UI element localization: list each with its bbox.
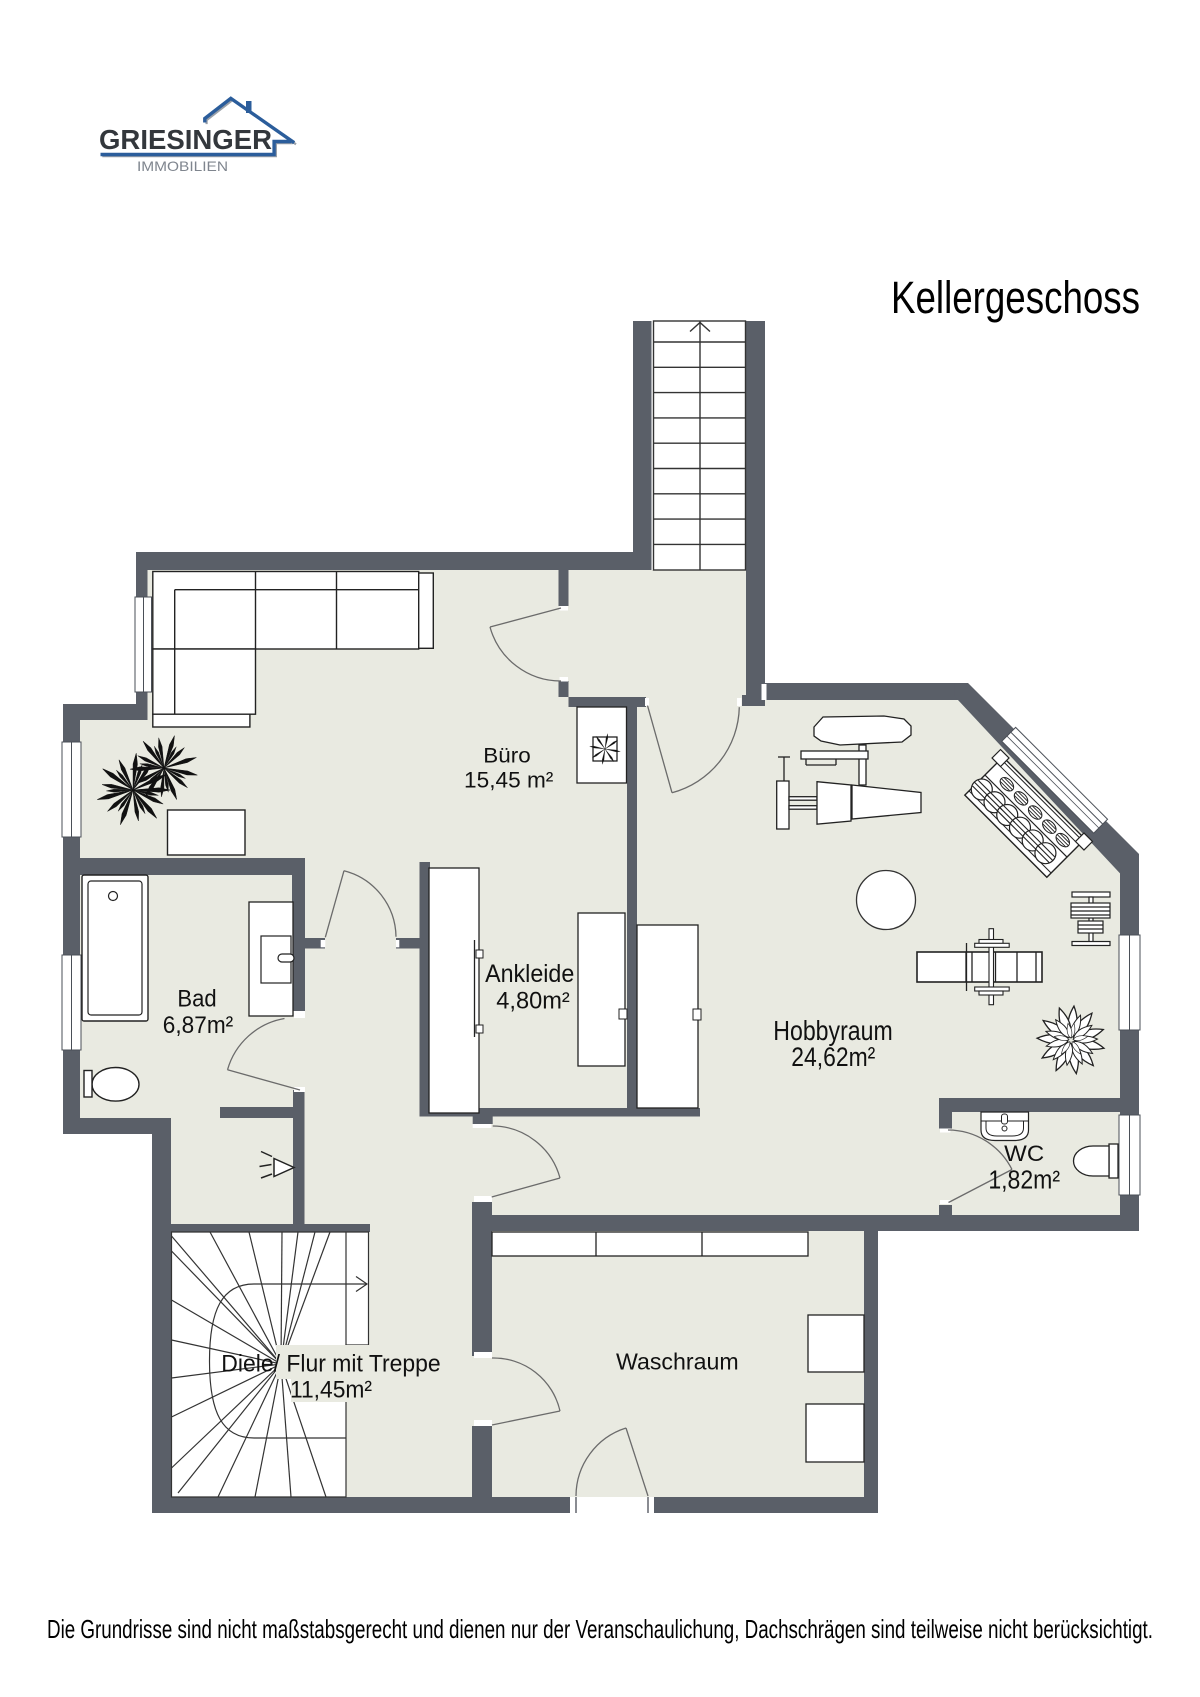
- svg-text:WC: WC: [1004, 1141, 1044, 1166]
- svg-text:Waschraum: Waschraum: [616, 1349, 739, 1375]
- svg-text:11,45m²: 11,45m²: [290, 1376, 372, 1403]
- svg-text:Bad: Bad: [177, 985, 216, 1012]
- svg-text:Büro: Büro: [483, 744, 530, 768]
- svg-text:IMMOBILIEN: IMMOBILIEN: [137, 158, 228, 174]
- svg-text:6,87m²: 6,87m²: [163, 1012, 233, 1039]
- svg-text:Ankleide: Ankleide: [485, 960, 574, 988]
- svg-text:15,45 m²: 15,45 m²: [464, 768, 553, 793]
- svg-text:Die Grundrisse sind nicht maßs: Die Grundrisse sind nicht maßstabsgerech…: [47, 1614, 1153, 1644]
- svg-text:1,82m²: 1,82m²: [988, 1166, 1060, 1194]
- svg-text:GRIESINGER: GRIESINGER: [99, 124, 272, 155]
- svg-text:4,80m²: 4,80m²: [496, 989, 570, 1015]
- svg-text:Kellergeschoss: Kellergeschoss: [891, 272, 1140, 323]
- svg-text:Diele/ Flur mit Treppe: Diele/ Flur mit Treppe: [221, 1351, 440, 1378]
- svg-text:24,62m²: 24,62m²: [791, 1042, 875, 1072]
